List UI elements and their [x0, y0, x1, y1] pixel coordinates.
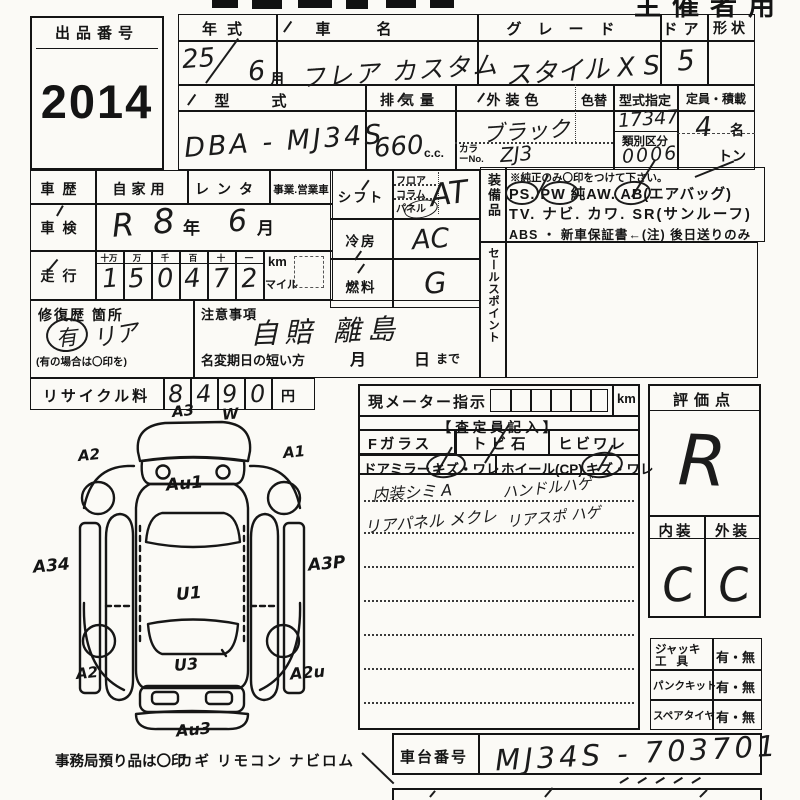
name-change-label: 名変期日の短い方 — [201, 350, 305, 369]
grid-line — [550, 389, 552, 412]
grid-line — [570, 389, 572, 412]
aircon-value: AC — [411, 223, 450, 257]
grade-header: グレード — [477, 18, 660, 39]
inspection-month: 6 — [227, 203, 248, 239]
digit-header: 万 — [123, 252, 151, 264]
hand-circle — [541, 181, 579, 205]
spare-tire-label: スペアタイヤ — [653, 708, 715, 723]
mileage-digit: 5 — [127, 263, 146, 294]
mileage-label: 走行 — [30, 266, 95, 286]
month-unit: 月 — [270, 68, 285, 89]
meter-label: 現メーター指示 — [368, 391, 487, 412]
grid-line — [30, 203, 333, 205]
damage-code: U3 — [173, 654, 199, 675]
color-no-value: ZJ3 — [499, 141, 533, 167]
front-bumper — [138, 422, 250, 461]
grid-line — [505, 167, 507, 242]
km-unit: km — [268, 254, 287, 269]
caution-value: 自賠 離島 — [249, 307, 401, 352]
damage-code: U1 — [175, 583, 202, 605]
year-value: 25 — [181, 43, 216, 75]
hand-stroke — [655, 777, 665, 784]
displacement-unit: c.c. — [424, 146, 444, 160]
ware-option: ワレ — [473, 462, 500, 477]
writing-line — [364, 600, 634, 602]
chassis-label: 車台番号 — [400, 746, 468, 767]
unit-checkbox — [294, 256, 324, 288]
damage-code: A2u — [289, 662, 325, 684]
hand-stroke — [637, 777, 647, 784]
grid-line — [178, 40, 755, 42]
grid-line — [455, 429, 457, 454]
capacity-unit: 名 — [730, 120, 744, 140]
damage-code: A3P — [307, 552, 346, 575]
history-label: 車歴 — [30, 179, 95, 199]
rear-face — [140, 686, 244, 712]
puncture-kit-label: パンクキット — [653, 678, 717, 693]
grid-line — [244, 378, 246, 410]
color-change-header: 色替 — [575, 90, 613, 109]
shape-header: 形状 — [707, 18, 755, 38]
grid-line — [648, 538, 761, 539]
wheel-front-right — [268, 482, 300, 514]
office-note: 事務局預り品は〇印 — [55, 750, 186, 771]
jack-value: 有・無 — [716, 647, 755, 666]
inspection-year-unit: 年 — [183, 214, 200, 239]
fuel-label: 燃料 — [330, 276, 392, 296]
deadline-month: 月 — [350, 346, 366, 370]
jack-label-2: 工具 — [655, 653, 698, 669]
clipped-print-fragment — [298, 0, 332, 8]
clipped-print-fragment — [386, 0, 416, 8]
spare-tire-value: 有・無 — [716, 707, 755, 726]
mileage-digit: 1 — [101, 263, 120, 294]
grid-line — [548, 429, 550, 454]
model-header: 型式 — [178, 90, 365, 111]
puncture-kit-value: 有・無 — [716, 677, 755, 696]
damage-code: Au3 — [175, 719, 211, 741]
damage-code: W — [221, 404, 239, 423]
damage-code: A1 — [282, 442, 306, 462]
hand-stroke — [699, 789, 708, 798]
color-no-label: カラーNo. — [459, 145, 487, 166]
mileage-digit: 2 — [240, 263, 259, 294]
month-value: 6 — [247, 55, 266, 87]
sales-point-box — [480, 242, 758, 378]
taillight-right — [206, 692, 232, 704]
clipped-print-fragment — [212, 0, 238, 8]
grid-line — [217, 378, 219, 410]
equipment-label: 装備品 — [484, 173, 503, 237]
digit-header: 千 — [151, 252, 179, 264]
rear-window — [148, 620, 238, 655]
inspection-era: R — [111, 205, 136, 244]
door-value: 5 — [676, 43, 696, 77]
clipped-print-fragment — [430, 0, 454, 8]
mileage-digit: 7 — [212, 263, 231, 294]
mileage-digit: 0 — [156, 263, 175, 294]
grid-line — [36, 48, 158, 49]
hand-stroke — [673, 777, 683, 784]
clipped-print-fragment — [346, 0, 368, 9]
office-items: カギ リモコン ナビロム — [178, 750, 355, 771]
damage-code: A2 — [75, 663, 99, 683]
digit-header: 十万 — [95, 252, 123, 264]
hand-circle — [505, 181, 539, 205]
windshield — [146, 513, 240, 547]
evaluation-label: 評価点 — [648, 389, 761, 410]
evaluation-score: R — [677, 419, 728, 503]
aircon-label: 冷房 — [330, 230, 392, 250]
displacement-header: 排気量 — [365, 90, 455, 110]
recycle-digit: 0 — [249, 380, 266, 409]
grid-line — [271, 378, 273, 410]
damage-code: A34 — [32, 554, 70, 577]
history-rental: レンタ — [187, 179, 269, 199]
grid-line — [392, 170, 394, 308]
digit-header: 十 — [207, 252, 235, 264]
capacity-value: 4 — [694, 111, 713, 143]
grid-line — [648, 410, 761, 411]
fuel-value: G — [423, 265, 448, 300]
inspection-month-unit: 月 — [257, 214, 274, 239]
grid-line — [760, 788, 762, 800]
grid-line — [330, 258, 480, 260]
displacement-value: 660 — [373, 130, 425, 163]
recycle-digit: 4 — [195, 380, 212, 409]
grid-line — [263, 250, 265, 300]
grid-line — [193, 300, 195, 378]
fglass-label: Fガラス — [368, 433, 432, 454]
grid-line — [478, 733, 480, 775]
grid-line — [330, 218, 480, 220]
color-header: 外装色 — [455, 90, 575, 110]
grid-line — [612, 384, 614, 415]
inspection-year: 8 — [152, 201, 176, 242]
grid-line — [392, 788, 394, 800]
damage-code: A3 — [171, 401, 195, 421]
name-header: 車名 — [276, 18, 477, 39]
meter-km-unit: km — [617, 391, 636, 406]
type-designation-value: 17347 — [617, 106, 679, 132]
hand-stroke — [429, 790, 436, 798]
damage-code: A2 — [77, 445, 101, 465]
grid-line — [358, 473, 640, 475]
grid-line — [505, 242, 507, 378]
door-mirror-label: ドアミラー — [363, 458, 430, 478]
capacity-header: 定員・積載 — [677, 90, 755, 107]
grid-line — [530, 389, 532, 412]
writing-line — [364, 668, 634, 670]
mileage-digit: 4 — [183, 263, 202, 294]
lot-label: 出品番号 — [30, 22, 164, 43]
history-business: 事業.営業車 — [269, 182, 333, 197]
lot-number: 2014 — [30, 74, 164, 129]
writing-line — [364, 566, 634, 568]
equip-ab-suffix: (エアバッグ) — [643, 187, 732, 203]
yen-unit: 円 — [281, 386, 295, 406]
deadline-made: まで — [436, 350, 460, 367]
equipment-line2: TV. ナビ. カワ. SR(サンルーフ) — [509, 203, 752, 224]
recycle-label: リサイクル料 — [30, 385, 163, 406]
hand-stroke — [619, 777, 629, 784]
writing-line — [364, 634, 634, 636]
digit-header: 一 — [235, 252, 263, 264]
hand-stroke — [691, 777, 701, 784]
writing-line — [364, 702, 634, 704]
auction-sheet: 主催者用 出品番号 2014 年式 車名 グレード ドア 形状 型式 排気量 外… — [0, 0, 800, 800]
equipment-line3: ABS ・ 新車保証書←(注) 後日送りのみ — [509, 224, 751, 243]
sales-point-label: セールスポイント — [485, 247, 501, 375]
door-header: ドア — [660, 18, 707, 39]
grid-line — [510, 389, 512, 412]
grid-line — [650, 699, 762, 701]
grid-line — [590, 389, 592, 412]
grid-line — [650, 669, 762, 671]
history-private: 自家用 — [95, 179, 187, 199]
year-header: 年式 — [178, 18, 276, 39]
crack-label: ヒビワレ — [558, 433, 628, 454]
damage-code: Au1 — [165, 472, 204, 495]
inspection-label: 車検 — [30, 218, 95, 238]
taillight-left — [152, 692, 178, 704]
clipped-print-fragment — [252, 0, 282, 9]
deadline-day: 日 — [414, 346, 430, 370]
front-fender-right — [250, 466, 300, 508]
hand-stroke — [361, 752, 394, 784]
headlight-right — [217, 466, 230, 479]
repair-hint: (有の場合は〇印を) — [36, 354, 127, 369]
grid-line — [163, 378, 165, 410]
digit-header: 百 — [179, 252, 207, 264]
